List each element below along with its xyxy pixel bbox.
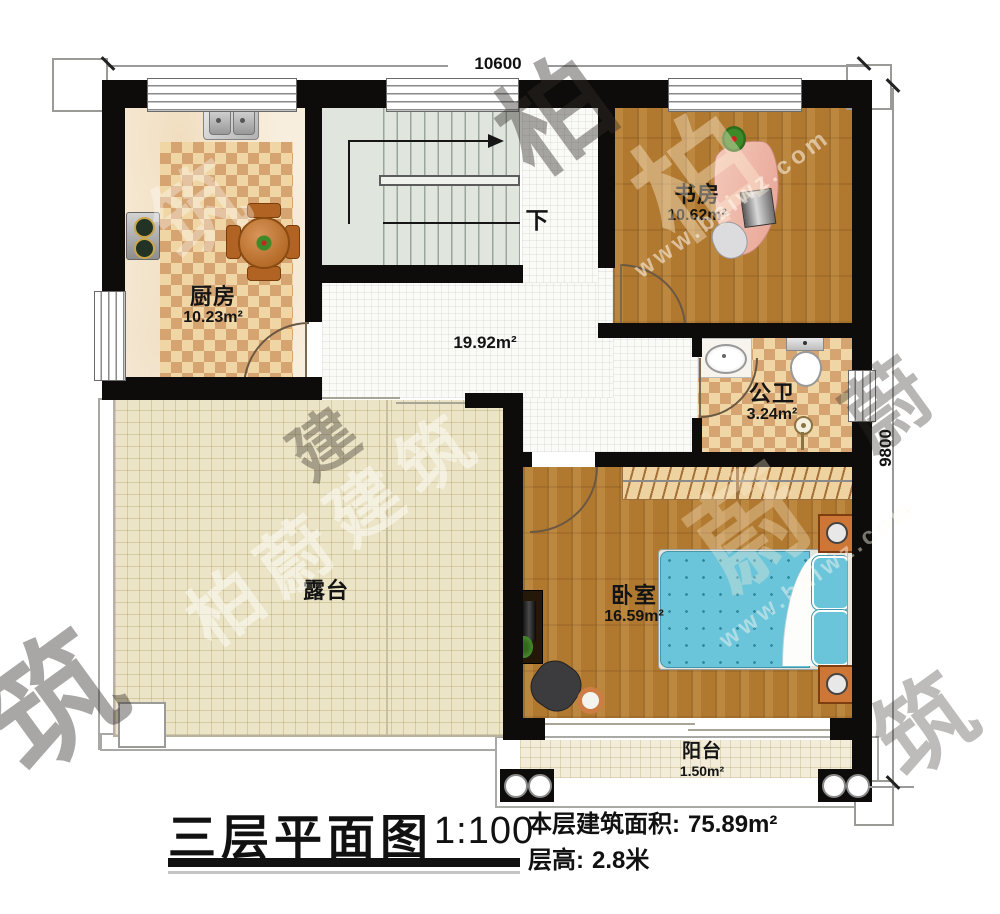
terrace-floor: [113, 400, 505, 737]
pillow-icon: [812, 556, 850, 610]
floor-area-line: 本层建筑面积:75.89m²: [528, 804, 777, 839]
bathroom-label: 公卫 3.24m²: [720, 381, 824, 425]
plant-icon: [722, 126, 746, 152]
bedroom-label: 卧室 16.59m²: [582, 583, 686, 627]
terrace-corner-post: [118, 702, 166, 748]
kitchen-name: 厨房: [151, 284, 275, 309]
stairs-path-line: [348, 140, 350, 224]
wardrobe-icon: [622, 464, 854, 500]
balcony-label: 阳台 1.50m²: [650, 741, 754, 779]
window-kitchen-top: [147, 78, 297, 112]
wall-bathroom-west-lower: [692, 418, 702, 452]
hall-corridor-floor: [522, 98, 598, 283]
dining-table-icon: [238, 217, 290, 269]
stairs-lower-flight: [383, 186, 520, 265]
bathroom-door-leaf: [699, 358, 701, 418]
balcony-column-icon: [846, 774, 870, 798]
wall-kitchen-stairs: [305, 80, 322, 283]
dimension-extension: [868, 786, 914, 788]
wall-study-south: [598, 323, 852, 338]
nightstand-icon: [818, 665, 856, 704]
bedroom-area: 16.59m²: [582, 608, 686, 626]
nightstand-icon: [818, 514, 856, 553]
shower-stem: [801, 432, 804, 450]
balcony-sliding-door: [545, 723, 695, 725]
floor-area-value: 75.89m²: [688, 811, 777, 838]
study-name: 书房: [645, 182, 749, 207]
balcony-name: 阳台: [650, 741, 754, 763]
hall-floor-east: [613, 338, 698, 452]
toilet-tank: [786, 336, 824, 351]
window-stairs-top: [386, 78, 519, 112]
window-bathroom-right: [848, 370, 876, 422]
floor-plan-page: 10600 9800 厨房 10.23m² 书房 10.62m² 公卫 3.24…: [0, 0, 1000, 914]
drawing-scale: 1:100: [434, 810, 534, 853]
wall-stairs-south: [305, 265, 523, 283]
balcony-column-icon: [504, 774, 528, 798]
floor-height-value: 2.8米: [592, 847, 649, 874]
wall-bedroom-north-stub: [523, 452, 532, 467]
stairs-path-line: [348, 140, 496, 142]
stairs-handrail: [379, 175, 520, 186]
dining-chair-icon: [247, 203, 281, 218]
terrace-joint-line: [386, 400, 388, 735]
dimension-right-value: 9800: [866, 428, 906, 468]
wall-bedroom-south-right: [830, 718, 872, 740]
terrace-label: 露台: [264, 578, 388, 603]
hall-floor-south: [523, 398, 618, 452]
wall-bedroom-south-left: [503, 718, 545, 740]
study-area: 10.62m²: [645, 207, 749, 225]
kitchen-area: 10.23m²: [151, 309, 275, 327]
round-stool-icon: [577, 687, 604, 714]
dimension-top-value: 10600: [448, 54, 548, 74]
terrace-sliding-door: [396, 402, 466, 404]
study-label: 书房 10.62m²: [645, 182, 749, 226]
title-underline-shadow: [168, 871, 520, 874]
floor-area-label: 本层建筑面积:: [528, 811, 680, 838]
bathroom-area: 3.24m²: [720, 406, 824, 424]
floor-height-label: 层高:: [528, 847, 584, 874]
kitchen-label: 厨房 10.23m²: [151, 284, 275, 328]
bathroom-name: 公卫: [720, 381, 824, 406]
wall-bathroom-west-upper: [692, 338, 702, 357]
wall-kitchen-east-lower: [305, 385, 322, 400]
balcony-area: 1.50m²: [650, 763, 754, 779]
wall-kitchen-east-upper: [305, 283, 322, 322]
wall-study-west: [598, 80, 615, 268]
terrace-sliding-door: [322, 397, 400, 399]
wall-right-upper: [852, 80, 872, 370]
stairs-direction-arrow-icon: [488, 134, 504, 148]
floor-height-line: 层高:2.8米: [528, 840, 649, 875]
study-door-leaf: [620, 264, 622, 326]
wall-right-lower: [852, 420, 872, 797]
wall-left-upper: [102, 80, 125, 293]
terrace-name: 露台: [264, 578, 388, 603]
stairs-path-line: [383, 222, 520, 224]
balcony-sliding-door: [688, 729, 832, 731]
corner-post-top-left: [52, 58, 108, 112]
stove-icon: [126, 212, 160, 260]
hall-label: 19.92m²: [423, 333, 547, 353]
wall-kitchen-south: [102, 377, 322, 400]
balcony-column-icon: [528, 774, 552, 798]
wall-bedroom-north: [595, 452, 852, 467]
hall-area: 19.92m²: [423, 333, 547, 353]
bedroom-name: 卧室: [582, 583, 686, 608]
balcony-column-icon: [822, 774, 846, 798]
window-study-top: [668, 78, 802, 112]
wall-hall-terrace-stub: [465, 393, 503, 408]
title-underline: [168, 858, 520, 867]
window-kitchen-left: [94, 291, 126, 381]
wall-bedroom-west: [503, 393, 523, 740]
pillow-icon: [812, 610, 850, 666]
stairs-down-label: 下: [519, 207, 555, 233]
